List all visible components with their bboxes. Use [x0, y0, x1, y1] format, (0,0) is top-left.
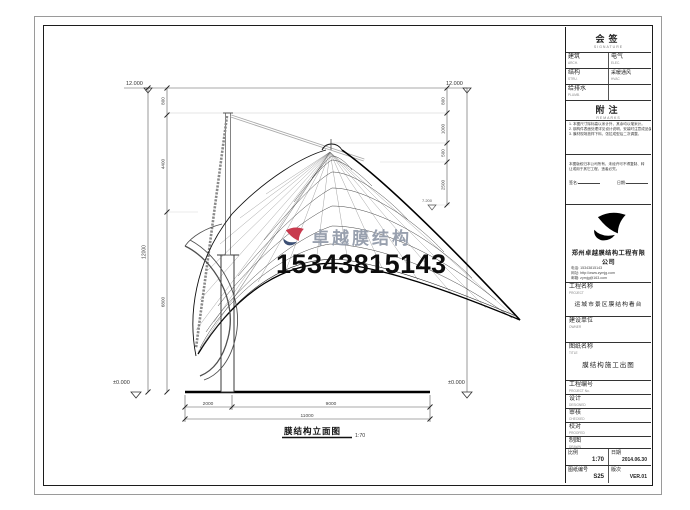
- svg-text:7.200: 7.200: [422, 198, 433, 203]
- notes-body: 1. 本图尺寸除标高以米计外，其余均以毫米计。 2. 钢构件表面处理详见设计说明…: [566, 121, 651, 155]
- scale-value: 1:70: [568, 457, 606, 463]
- owner-cell: 建设单位 OWNER: [566, 317, 651, 343]
- project-no-cell: 工程编号 PROJECT No.: [566, 381, 651, 395]
- dim-right-seg1: 800: [441, 97, 446, 105]
- drawn-cell: 制图 DRAWN: [566, 437, 651, 449]
- drawing-name-cell: 图纸名称 TITLE 膜结构施工出图: [566, 343, 651, 381]
- scale-date-row: 比例 1:70 日期 2014.06.30: [566, 449, 651, 466]
- dim-left-total: 12000: [142, 245, 148, 259]
- dim-left-seg1: 800: [161, 97, 166, 105]
- signoff-row-1: 建筑ARCH. 电气ELEC.: [566, 53, 651, 69]
- ground-level-left-label: ±0.000: [113, 380, 130, 386]
- top-level-left-label: 12.000: [126, 81, 143, 87]
- ground-level-right-label: ±0.000: [448, 380, 465, 386]
- dwgno-version-row: 图纸编号 S25 版次 VER.01: [566, 466, 651, 483]
- title-block: 会签 SIGNATURE 建筑ARCH. 电气ELEC. 结构STRU. 采暖通…: [565, 27, 651, 483]
- dwg-no-value: S25: [568, 474, 606, 480]
- mast: [217, 113, 239, 392]
- notes-header: 附注 REMARKS: [566, 101, 651, 121]
- membrane-mesh: [185, 139, 520, 380]
- view-scale-text: 1:70: [355, 433, 365, 439]
- dimension-right: [445, 86, 468, 393]
- dim-right-seg2: 1000: [441, 123, 446, 134]
- date-value: 2014.06.30: [611, 457, 649, 463]
- copyright-statement: 本图版权归本公司所有，未经许可不得复制、转让或用于其它工程，违者必究。 签名: …: [566, 155, 651, 205]
- checked-cell: 审核 CHECKED: [566, 409, 651, 423]
- project-name-value: 运城市景区膜结构看台: [569, 299, 648, 308]
- view-title-text: 膜结构立面图: [284, 426, 341, 436]
- dim-right-seg4: 2500: [441, 179, 446, 190]
- dim-bottom-seg2: 9000: [326, 401, 337, 407]
- dim-bottom-total: 11000: [301, 413, 314, 419]
- elevation-drawing: 12.000 12.000 12000 800 4400 6800 800 10…: [44, 27, 565, 483]
- signoff-header: 会签 SIGNATURE: [566, 27, 651, 53]
- signoff-row-3: 给排水PLUMB.: [566, 85, 651, 101]
- signoff-row-2: 结构STRU. 采暖通风HVAC: [566, 69, 651, 85]
- dim-left-seg2: 4400: [161, 158, 166, 169]
- proofed-cell: 校对 PROOFED: [566, 423, 651, 437]
- project-name-cell: 工程名称 PROJECT 运城市景区膜结构看台: [566, 283, 651, 317]
- company-block: 郑州卓越膜结构工程有限公司 电话: 15343815143 网址: http:/…: [566, 205, 651, 283]
- right-level-marker: 7.200: [422, 198, 436, 210]
- view-title: 膜结构立面图 1:70: [282, 426, 365, 439]
- company-mail: 邮箱: zymjg@163.com: [571, 276, 648, 281]
- company-logo-icon: [583, 209, 635, 246]
- designed-cell: 设计 DESIGNED: [566, 395, 651, 409]
- drawing-name-value: 膜结构施工出图: [569, 359, 648, 369]
- dim-left-seg3: 6800: [161, 296, 166, 307]
- dim-bottom-seg1: 2000: [203, 401, 214, 407]
- company-name: 郑州卓越膜结构工程有限公司: [569, 248, 648, 266]
- version-value: VER.01: [611, 474, 649, 480]
- dimension-left: [146, 86, 170, 395]
- dim-right-seg3: 500: [441, 149, 446, 157]
- top-level-line: 12.000 12.000: [124, 81, 471, 93]
